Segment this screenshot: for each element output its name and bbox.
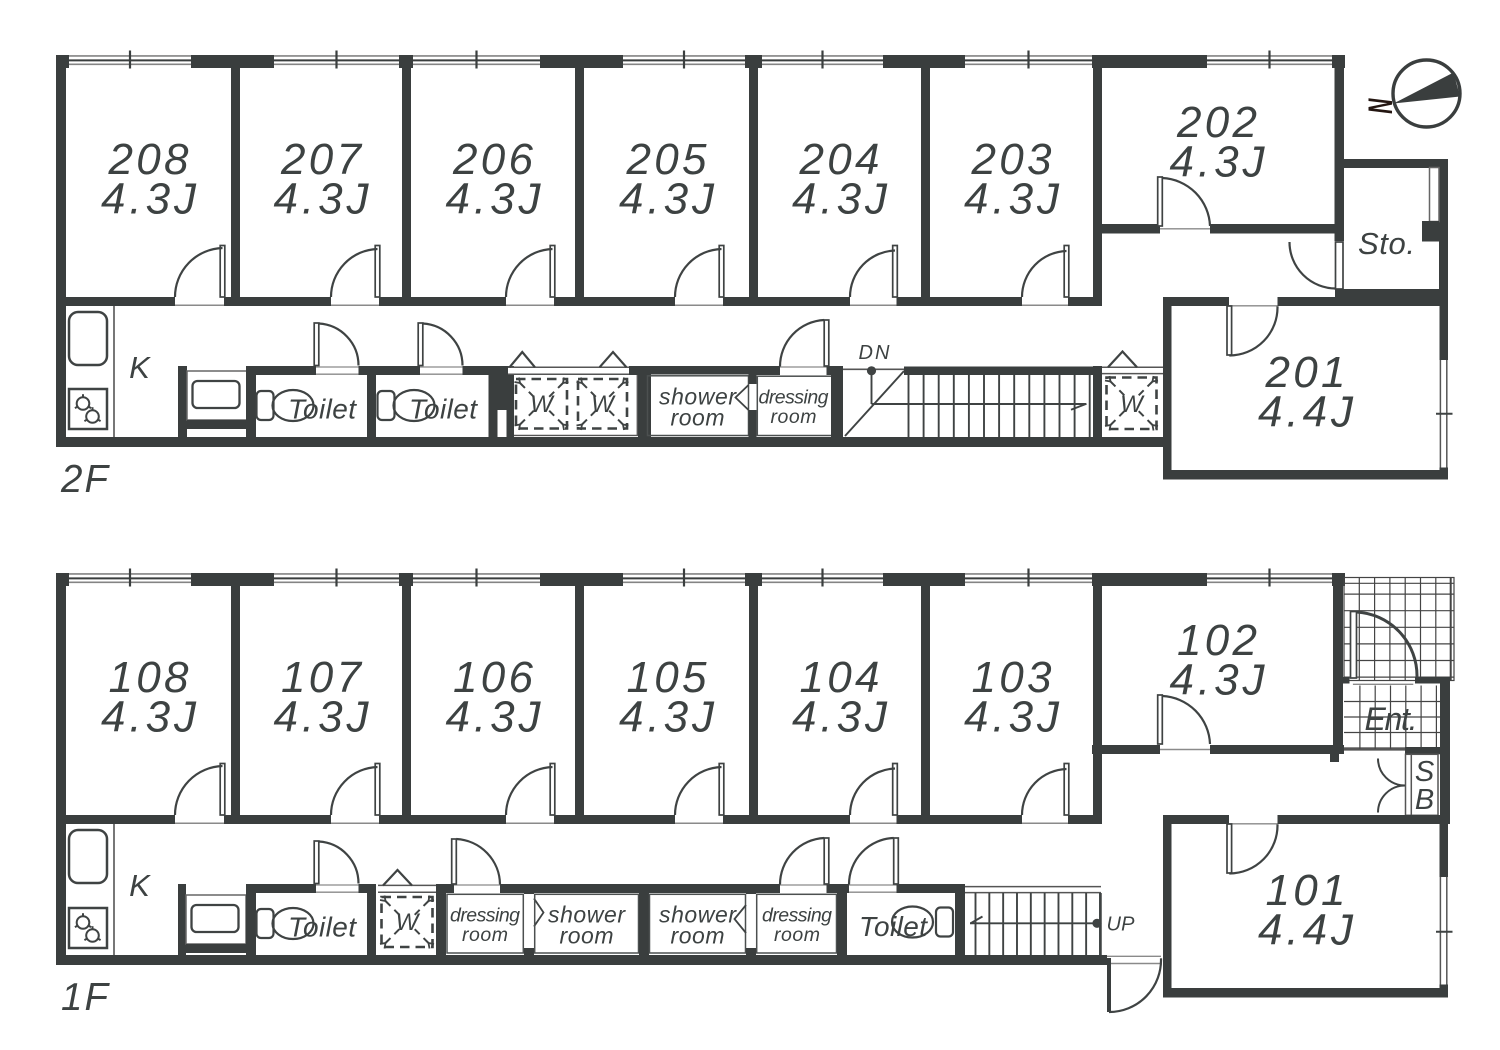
svg-text:4.4J: 4.4J: [1258, 906, 1354, 955]
svg-text:4.4J: 4.4J: [1258, 388, 1354, 437]
svg-text:Toilet: Toilet: [859, 911, 928, 942]
svg-text:B: B: [1415, 784, 1434, 816]
svg-text:W: W: [591, 391, 616, 418]
svg-text:4.3J: 4.3J: [1170, 138, 1266, 187]
svg-text:room: room: [462, 924, 508, 946]
svg-text:4.3J: 4.3J: [619, 175, 715, 224]
svg-text:4.3J: 4.3J: [964, 175, 1060, 224]
svg-text:room: room: [560, 923, 614, 949]
svg-text:room: room: [771, 406, 817, 428]
svg-text:room: room: [671, 405, 725, 431]
svg-text:4.3J: 4.3J: [792, 693, 888, 742]
svg-text:room: room: [774, 924, 820, 946]
svg-text:4.3J: 4.3J: [446, 175, 542, 224]
svg-text:K: K: [129, 350, 151, 385]
svg-text:4.3J: 4.3J: [101, 693, 197, 742]
svg-text:W: W: [396, 909, 421, 936]
svg-text:4.3J: 4.3J: [619, 693, 715, 742]
svg-text:N: N: [1361, 98, 1399, 114]
svg-text:room: room: [671, 923, 725, 949]
svg-text:1F: 1F: [61, 976, 110, 1019]
svg-text:Toilet: Toilet: [288, 394, 357, 425]
svg-text:Toilet: Toilet: [288, 912, 357, 943]
svg-text:UP: UP: [1107, 914, 1136, 936]
svg-text:4.3J: 4.3J: [792, 175, 888, 224]
svg-text:K: K: [129, 868, 151, 903]
svg-text:4.3J: 4.3J: [446, 693, 542, 742]
svg-text:4.3J: 4.3J: [101, 175, 197, 224]
svg-text:Toilet: Toilet: [409, 394, 478, 425]
svg-text:W: W: [530, 391, 555, 418]
svg-text:DN: DN: [859, 342, 891, 364]
svg-text:4.3J: 4.3J: [274, 693, 370, 742]
svg-text:4.3J: 4.3J: [274, 175, 370, 224]
svg-text:4.3J: 4.3J: [964, 693, 1060, 742]
svg-text:4.3J: 4.3J: [1170, 656, 1266, 705]
svg-text:W: W: [1120, 391, 1145, 418]
svg-text:2F: 2F: [60, 458, 110, 501]
svg-text:Sto.: Sto.: [1358, 226, 1415, 261]
svg-text:Ent.: Ent.: [1365, 701, 1418, 737]
